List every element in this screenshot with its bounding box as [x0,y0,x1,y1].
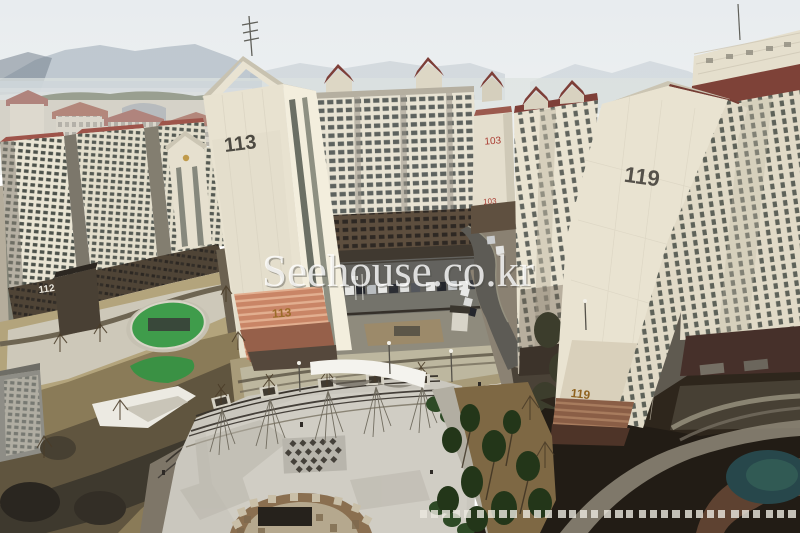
svg-text:112: 112 [38,283,56,296]
svg-text:103: 103 [484,135,502,147]
svg-text:119: 119 [623,162,662,192]
svg-text:Seehouse.co.kr: Seehouse.co.kr [262,245,534,296]
svg-text:113: 113 [271,305,292,321]
svg-text:113: 113 [223,131,258,157]
svg-text:119: 119 [570,386,591,402]
